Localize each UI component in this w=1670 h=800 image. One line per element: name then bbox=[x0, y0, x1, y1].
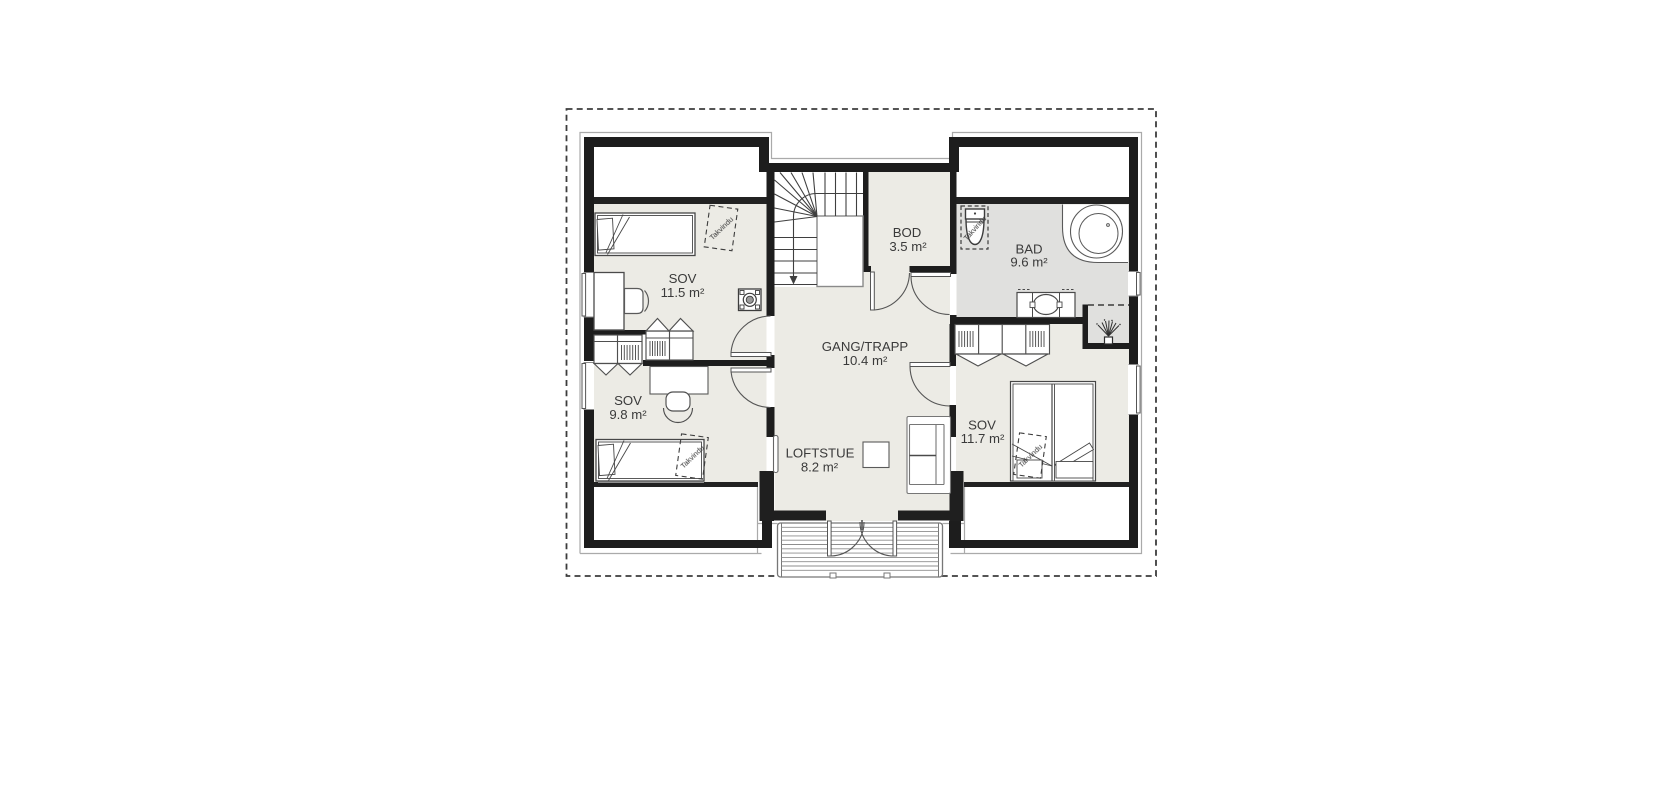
svg-text:LOFTSTUE: LOFTSTUE bbox=[786, 446, 855, 461]
svg-text:SOV: SOV bbox=[669, 271, 697, 286]
svg-text:BOD: BOD bbox=[893, 225, 922, 240]
svg-text:SOV: SOV bbox=[614, 393, 642, 408]
svg-text:9.8 m²: 9.8 m² bbox=[609, 407, 647, 422]
svg-text:11.7 m²: 11.7 m² bbox=[961, 431, 1005, 446]
svg-text:10.4 m²: 10.4 m² bbox=[843, 353, 888, 368]
svg-text:11.5 m²: 11.5 m² bbox=[661, 285, 705, 300]
svg-text:3.5 m²: 3.5 m² bbox=[889, 239, 927, 254]
svg-text:8.2 m²: 8.2 m² bbox=[801, 460, 839, 475]
svg-text:GANG/TRAPP: GANG/TRAPP bbox=[822, 339, 909, 354]
svg-text:9.6 m²: 9.6 m² bbox=[1010, 255, 1048, 270]
